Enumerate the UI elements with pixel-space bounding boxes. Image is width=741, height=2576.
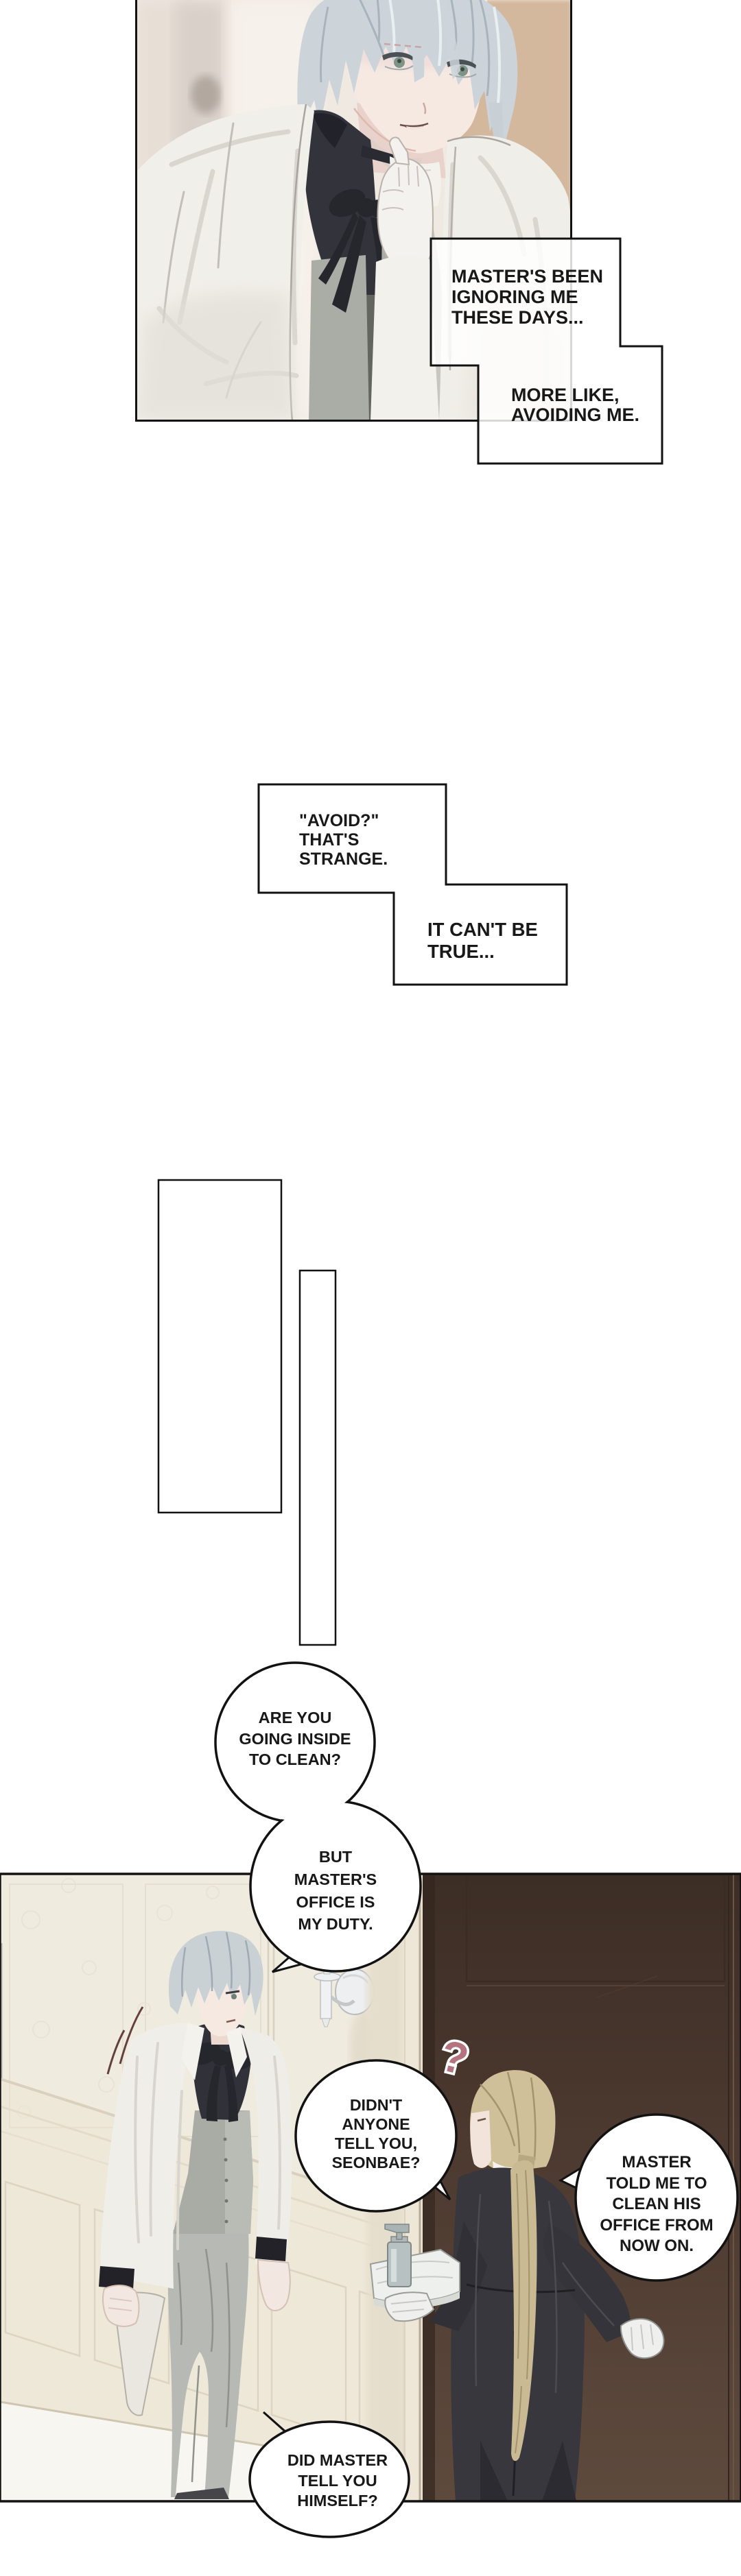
svg-text:GOING INSIDE: GOING INSIDE xyxy=(239,1730,351,1748)
svg-text:NOW ON.: NOW ON. xyxy=(620,2237,694,2255)
svg-text:MORE LIKE,: MORE LIKE, xyxy=(511,385,620,405)
svg-text:CLEAN HIS: CLEAN HIS xyxy=(612,2195,701,2213)
svg-text:THESE DAYS...: THESE DAYS... xyxy=(451,307,584,328)
svg-text:IT CAN'T BE: IT CAN'T BE xyxy=(427,919,538,940)
svg-text:MASTER'S BEEN: MASTER'S BEEN xyxy=(451,266,603,287)
svg-text:DIDN'T: DIDN'T xyxy=(350,2096,402,2114)
svg-text:"AVOID?": "AVOID?" xyxy=(299,811,379,830)
svg-text:TELL YOU,: TELL YOU, xyxy=(335,2134,417,2152)
svg-text:MASTER: MASTER xyxy=(622,2153,691,2171)
svg-text:ARE YOU: ARE YOU xyxy=(259,1709,332,1726)
svg-text:ANYONE: ANYONE xyxy=(342,2115,410,2133)
svg-text:THAT'S: THAT'S xyxy=(299,830,359,850)
svg-text:TO CLEAN?: TO CLEAN? xyxy=(249,1750,341,1768)
svg-text:IGNORING ME: IGNORING ME xyxy=(451,287,578,307)
svg-text:TELL YOU: TELL YOU xyxy=(298,2472,377,2490)
svg-text:MY DUTY.: MY DUTY. xyxy=(298,1915,373,1933)
svg-text:TOLD ME TO: TOLD ME TO xyxy=(606,2174,707,2193)
svg-text:SEONBAE?: SEONBAE? xyxy=(332,2154,421,2171)
svg-text:DID MASTER: DID MASTER xyxy=(287,2451,388,2469)
svg-text:TRUE...: TRUE... xyxy=(427,941,495,962)
svg-text:MASTER'S: MASTER'S xyxy=(294,1870,377,1888)
svg-text:OFFICE IS: OFFICE IS xyxy=(296,1893,375,1911)
svg-text:HIMSELF?: HIMSELF? xyxy=(297,2492,378,2509)
svg-text:BUT: BUT xyxy=(319,1848,353,1866)
svg-text:STRANGE.: STRANGE. xyxy=(299,850,388,869)
svg-text:OFFICE FROM: OFFICE FROM xyxy=(600,2216,713,2235)
svg-text:AVOIDING ME.: AVOIDING ME. xyxy=(511,405,639,425)
